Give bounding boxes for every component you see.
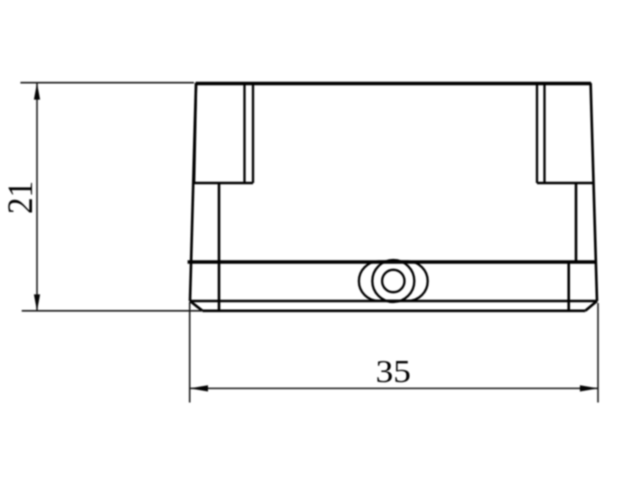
- svg-text:35: 35: [376, 355, 411, 390]
- svg-text:21: 21: [1, 181, 41, 214]
